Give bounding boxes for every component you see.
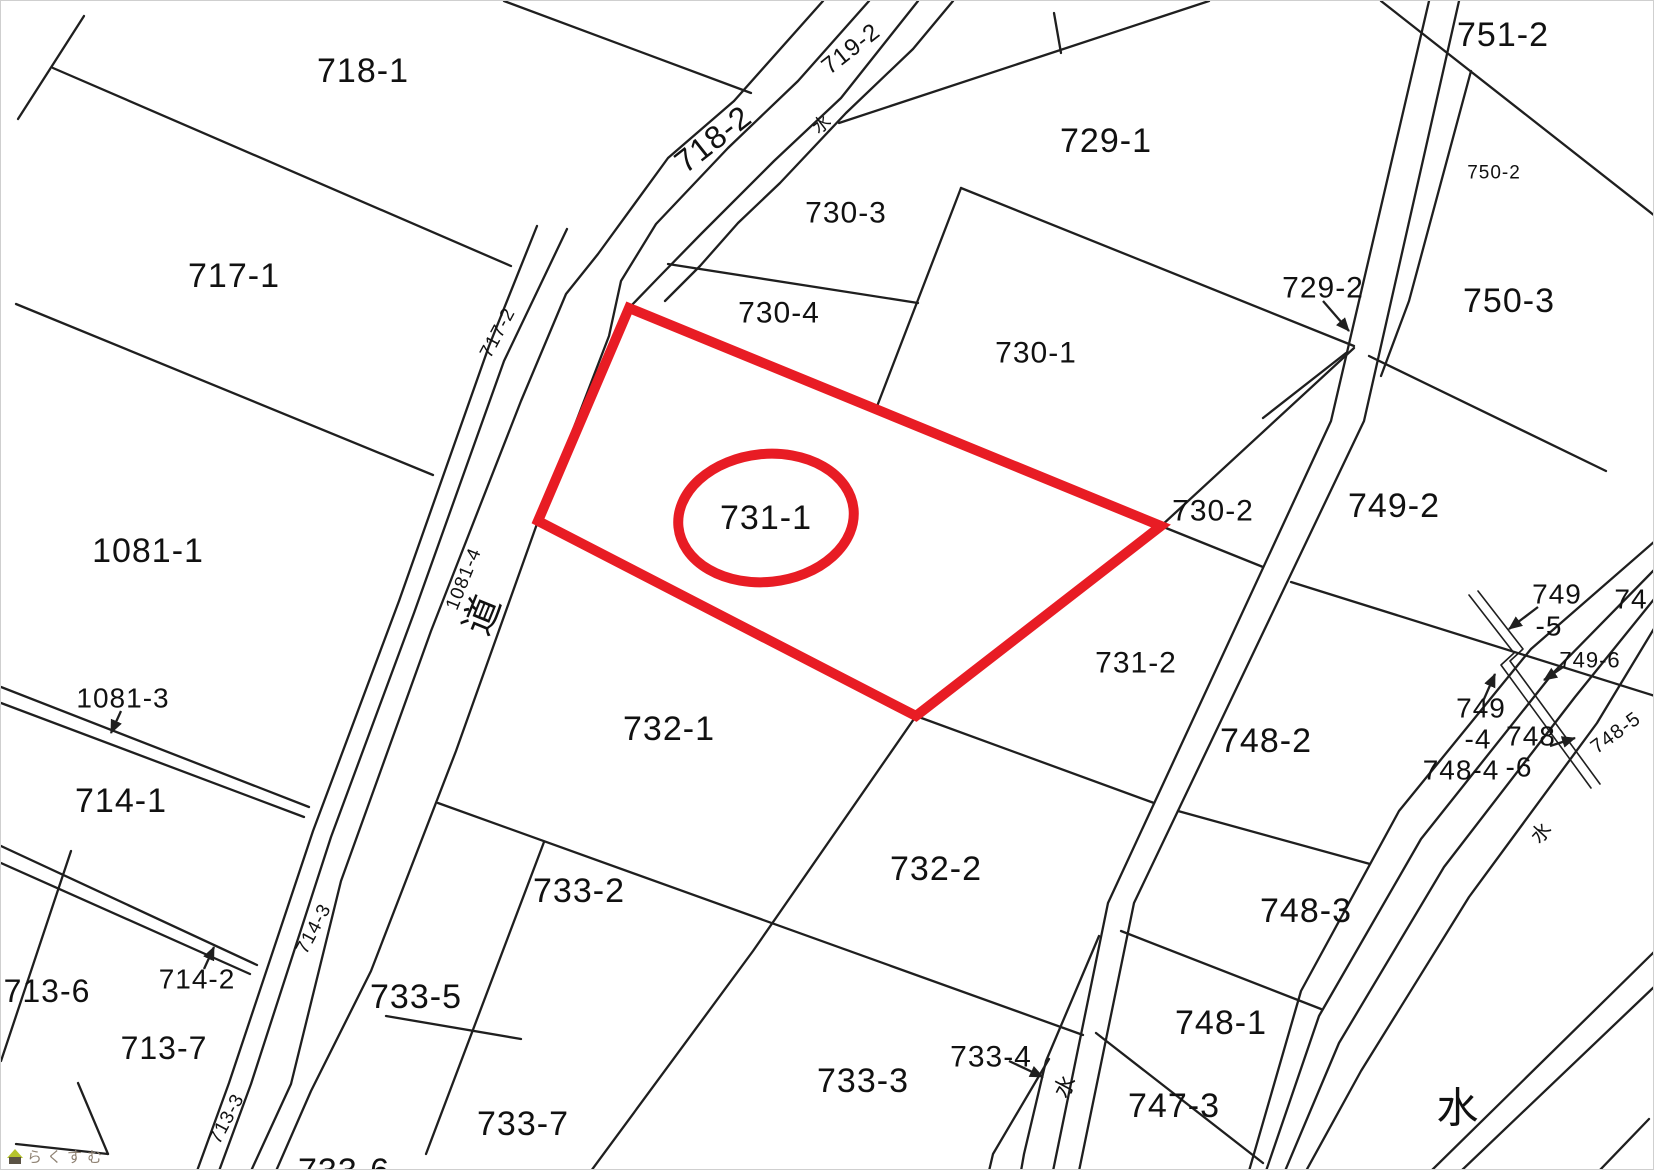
parcel-label-w-52: 水 [1436, 1085, 1479, 1132]
boundary-line [504, 1, 751, 93]
parcel-label-732-2-30: 732-2 [890, 850, 982, 888]
boundary-line [1121, 931, 1321, 1009]
parcel-label-730-4-17: 730-4 [738, 297, 820, 330]
boundary-line [1161, 526, 1263, 567]
boundary-lines-layer [1, 1, 1654, 1170]
parcel-label-733-4-35: 733-4 [950, 1041, 1032, 1074]
boundary-line [1054, 13, 1061, 53]
boundary-line [251, 1, 823, 1170]
parcel-label-749-41: 749 [1532, 579, 1582, 610]
parcel-label-748-1-38: 748-1 [1175, 1004, 1267, 1042]
parcel-label-748-3-39: 748-3 [1260, 892, 1352, 930]
parcel-label-717-2-11: 717-2 [476, 304, 520, 361]
parcel-label-750-3-23: 750-3 [1463, 282, 1555, 320]
parcel-label-733-6-33: 733-6 [298, 1152, 390, 1170]
boundary-line [916, 716, 1154, 803]
parcel-label--5-42: -5 [1536, 611, 1563, 642]
parcel-label-74-50: 74 [1614, 584, 1647, 615]
boundary-line [53, 68, 511, 266]
parcel-label-w-51: 水 [1526, 817, 1557, 848]
boundary-line [591, 716, 916, 1170]
boundary-line [16, 304, 433, 475]
leader-arrow [111, 711, 121, 733]
leader-arrow [1509, 607, 1538, 629]
parcel-label-730-1-18: 730-1 [995, 337, 1077, 370]
parcel-label-713-7-7: 713-7 [121, 1030, 208, 1066]
parcel-label-729-1-19: 729-1 [1060, 122, 1152, 160]
parcel-label--4-45: -4 [1465, 724, 1492, 755]
boundary-line [1, 863, 250, 974]
boundary-line [1381, 71, 1471, 376]
parcel-label-748-5-49: 748-5 [1587, 708, 1645, 759]
parcel-label-729-2-20: 729-2 [1282, 272, 1364, 305]
parcel-label-733-7-32: 733-7 [477, 1105, 569, 1143]
parcel-label-714-1-4: 714-1 [75, 782, 167, 820]
parcel-label-w-10: 水 [808, 110, 835, 137]
boundary-line [1431, 951, 1654, 1170]
house-logo-icon [7, 1149, 23, 1165]
boundary-line [1599, 1119, 1649, 1170]
parcel-label-730-3-16: 730-3 [805, 197, 887, 230]
parcel-label-751-2-21: 751-2 [1457, 16, 1549, 54]
parcel-label-w-36: 水 [1049, 1070, 1082, 1102]
cadastral-map-viewer: 718-1717-11081-11081-3714-1714-2713-6713… [0, 0, 1654, 1170]
cadastral-map-canvas: 718-1717-11081-11081-3714-1714-2713-6713… [1, 1, 1654, 1170]
parcel-label-713-6-6: 713-6 [4, 973, 91, 1009]
boundary-line [1, 851, 71, 1061]
parcel-label-748-4-48: 748-4 [1423, 755, 1500, 786]
boundary-line [386, 1016, 521, 1039]
boundary-line [1053, 1, 1429, 1170]
boundary-line [1369, 356, 1606, 471]
parcel-label-718-2-8: 718-2 [668, 98, 759, 180]
parcel-label-749-6-43: 749-6 [1559, 648, 1620, 673]
parcel-label-749-2-24: 749-2 [1348, 487, 1440, 525]
rakusumu-watermark: らくすむ [7, 1147, 107, 1167]
boundary-line [219, 229, 567, 1170]
boundary-line [78, 1083, 108, 1154]
parcel-label-733-2-29: 733-2 [533, 872, 625, 910]
parcel-labels-layer: 718-1717-11081-11081-3714-1714-2713-6713… [4, 16, 1648, 1170]
parcel-label-714-2-5: 714-2 [159, 964, 236, 995]
parcel-label-717-1-1: 717-1 [188, 257, 280, 295]
leader-arrows-layer [111, 301, 1575, 1077]
parcel-label-1081-1-2: 1081-1 [92, 532, 204, 570]
parcel-label-748-2-40: 748-2 [1220, 722, 1312, 760]
parcel-label-1081-3-3: 1081-3 [76, 683, 169, 714]
parcel-label-748-46: 748 [1506, 721, 1556, 752]
parcel-label-718-1-0: 718-1 [317, 52, 409, 90]
parcel-label-732-1-28: 732-1 [623, 710, 715, 748]
parcel-label-750-2-22: 750-2 [1467, 163, 1521, 184]
boundary-line [438, 803, 1083, 1035]
boundary-line [1178, 811, 1370, 864]
parcel-label-747-3-37: 747-3 [1128, 1087, 1220, 1125]
parcel-label--6-47: -6 [1506, 752, 1533, 783]
watermark-text: らくすむ [27, 1150, 107, 1165]
parcel-label-731-2-27: 731-2 [1095, 647, 1177, 680]
parcel-label-713-3-15: 713-3 [205, 1090, 249, 1147]
leader-arrow [1323, 301, 1349, 331]
boundary-line [839, 1, 1209, 123]
boundary-line [961, 188, 1354, 346]
parcel-label-731-1-26: 731-1 [720, 499, 812, 537]
boundary-line [18, 16, 84, 119]
parcel-label-733-5-31: 733-5 [370, 978, 462, 1016]
boundary-line [197, 226, 537, 1170]
parcel-label-749-44: 749 [1456, 693, 1506, 724]
parcel-label-730-2-25: 730-2 [1172, 495, 1254, 528]
parcel-label-733-3-34: 733-3 [817, 1062, 909, 1100]
boundary-line [1079, 1, 1459, 1170]
